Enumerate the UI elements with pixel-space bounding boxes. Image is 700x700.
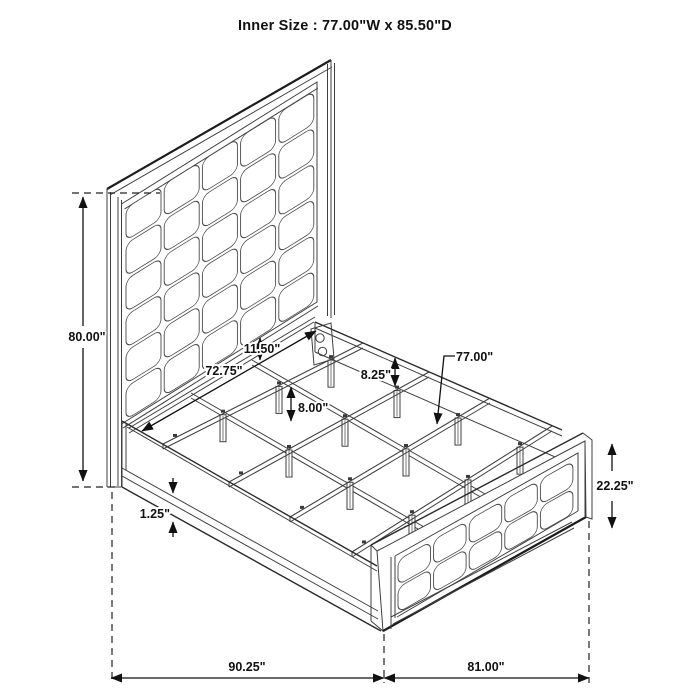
dim-label: 1.25" bbox=[140, 507, 170, 521]
dim-label: 81.00" bbox=[467, 660, 504, 674]
dim-footboard-height: 22.25" bbox=[596, 444, 633, 528]
slat-bottom-edge bbox=[290, 403, 490, 522]
screw-dot bbox=[221, 410, 225, 413]
dim-overall-width: 81.00" bbox=[384, 660, 589, 678]
screw-dot bbox=[277, 381, 281, 384]
screw-dot bbox=[362, 540, 366, 543]
bolt-hole bbox=[316, 334, 324, 342]
screw-dot bbox=[329, 355, 333, 358]
dim-leg-height: 8.00" bbox=[291, 387, 328, 421]
dim-label: 80.00" bbox=[68, 330, 105, 344]
bed-dimension-diagram: Inner Size : 77.00"W x 85.50"D bbox=[0, 0, 700, 700]
screw-dot bbox=[173, 434, 177, 437]
rail-lip-top bbox=[122, 468, 378, 611]
inner-size-title: Inner Size : 77.00"W x 85.50"D bbox=[238, 18, 452, 34]
screw-dot bbox=[410, 510, 414, 513]
dim-label: 90.25" bbox=[228, 660, 265, 674]
dim-overall-depth: 90.25" bbox=[111, 660, 384, 678]
dim-label: 77.00" bbox=[456, 350, 493, 364]
headboard-right-post bbox=[328, 60, 335, 318]
dim-headboard-height: 80.00" bbox=[68, 197, 105, 481]
screw-dot bbox=[343, 414, 347, 417]
screw-dot bbox=[348, 477, 352, 480]
dim-label: 72.75" bbox=[205, 364, 242, 378]
screw-dot bbox=[239, 471, 243, 474]
screw-dot bbox=[518, 442, 522, 445]
diagram-canvas: Inner Size : 77.00"W x 85.50"D bbox=[0, 0, 700, 700]
dim-label: 8.00" bbox=[298, 401, 328, 415]
near-side-rail bbox=[122, 421, 381, 631]
far-side-rail bbox=[315, 322, 562, 460]
headboard-left-post bbox=[107, 189, 122, 487]
screw-dot bbox=[404, 444, 408, 447]
dim-label: 8.25" bbox=[361, 368, 391, 382]
screw-dot bbox=[287, 445, 291, 448]
bolt-hole bbox=[318, 347, 326, 355]
dim-label: 11.50" bbox=[244, 342, 281, 356]
screw-dot bbox=[395, 386, 399, 389]
screw-dot bbox=[456, 413, 460, 416]
screw-dot bbox=[466, 475, 470, 478]
screw-dot bbox=[300, 506, 304, 509]
dim-label: 22.25" bbox=[596, 479, 633, 493]
dim-rail-height: 8.25" bbox=[361, 358, 395, 386]
